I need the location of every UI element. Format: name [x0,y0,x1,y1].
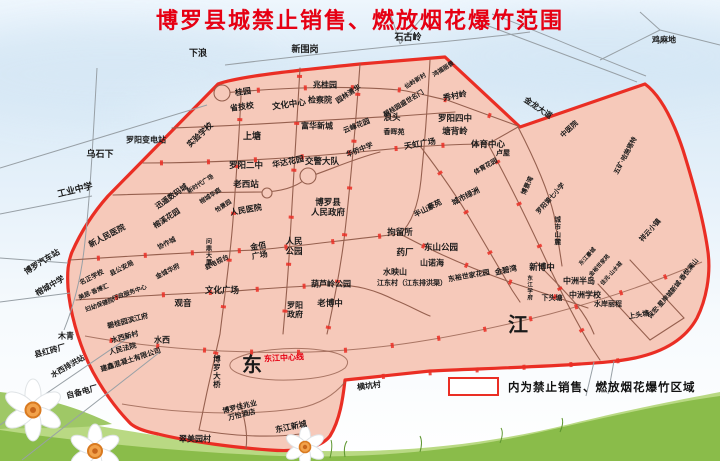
map-label: 江 [508,315,530,338]
map-label: 罗阳 政府 [287,301,303,319]
map-label: 检察院 [308,95,332,104]
map-label: 老西站 [233,180,259,190]
map-label: 老博中 [317,299,343,309]
map-label: 兆桂园 [313,80,337,89]
map-label: 水映山 [383,267,407,276]
map-label: 博罗大桥 [212,355,221,389]
map-label: 下浪 [189,48,207,58]
map-label: 罗阳四中 [438,114,472,124]
map-label: 下头塘 [542,295,563,303]
daffodil-flower [68,424,122,461]
map-label: 葫芦岭公园 [311,279,351,288]
map-label: 香晖苑 [384,129,405,137]
fireworks-ban-map: 下浪新围岗石古岭鸡麻地乌石下罗阳变电站工业中学博罗汽车站榕城中学县红砖厂水西排洪… [0,0,720,461]
map-label: 浪头 [383,113,400,123]
map-label: 水岸丽程 [594,301,622,309]
map-label: 翠美园村 [179,434,211,443]
map-label: 城市山麓 [552,216,559,246]
map-label: 罗阳变电站 [126,135,166,144]
map-label: 观音 [174,299,191,309]
map-label: 富华新城 [301,121,333,130]
page-title: 博罗县城禁止销售、燃放烟花爆竹范围 [0,3,720,35]
map-label: 乌石下 [86,149,113,159]
map-label: 东江学府 [526,275,532,301]
map-label: 中洲半岛 [563,276,595,285]
map-label: 上塘 [243,131,261,141]
map-label: 新围岗 [291,44,318,54]
map-label: 江东村（江东排洪渠） [377,280,447,288]
map-label: 人民 公园 [285,237,302,257]
map-label: 文化广场 [205,286,239,296]
map-label: 东 [242,355,264,378]
map-label: 拘留所 [387,228,413,238]
map-label: 塘背岭 [442,127,468,137]
map-label: 罗阳二中 [229,161,263,171]
map-label: 鸡麻地 [652,35,676,44]
map-label: 卢屋 [496,150,510,158]
legend-text: 内为禁止销售、燃放烟花爆竹区域 [508,379,696,395]
map-label: 新博中 [529,263,555,273]
map-label: 水西 [154,335,170,344]
legend-zone-swatch [448,377,499,396]
map-label: 山诺海 [420,258,444,267]
map-label: 木青 [58,331,74,340]
legend: 内为禁止销售、燃放烟花爆竹区域 [448,377,696,396]
map-label: 金佰 广场 [250,241,269,262]
map-label: 交警大队 [305,157,339,167]
map-label: 中洲学校 [569,290,601,299]
map-label: 药厂 [396,248,413,258]
map-label: 东山公园 [424,243,458,253]
map-label: 博罗县 人民政府 [311,198,345,218]
map-label: 体育中心 [471,140,505,150]
